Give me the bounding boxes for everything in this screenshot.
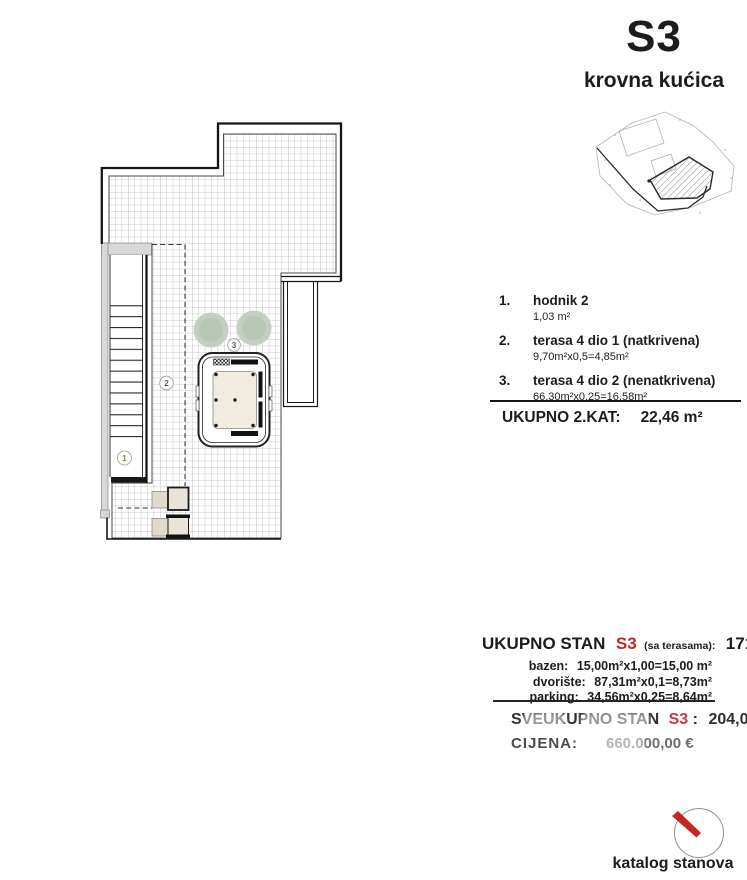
- stair-top-wall: [102, 243, 152, 255]
- right-planter-wall-inner: [288, 282, 314, 403]
- legend-item: 3. terasa 4 dio 2 (nenatkrivena) 66,30m²…: [499, 373, 747, 403]
- legend-item-number: 2.: [499, 333, 533, 363]
- unit-type-subtitle: krovna kućica: [571, 69, 737, 93]
- flat-total-note: (sa terasama):: [644, 640, 715, 652]
- left-outer-wall: [102, 243, 109, 513]
- grand-total-code: S3: [669, 711, 689, 728]
- legend-item-number: 3.: [499, 373, 533, 403]
- legend-item-number: 1.: [499, 293, 533, 323]
- legend-item-area: 1,03 m²: [533, 311, 589, 323]
- extra-area-row: dvorište: 87,31m²x0,1=8,73m²: [529, 675, 712, 691]
- room-label-3: 3: [228, 339, 241, 352]
- hot-tub: [196, 353, 272, 447]
- floor-plan: 1 2 3: [95, 120, 347, 544]
- flat-total-label: UKUPNO STAN: [482, 634, 605, 653]
- price-label: CIJENA:: [511, 735, 578, 752]
- room-legend: 1. hodnik 2 1,03 m² 2. terasa 4 dio 1 (n…: [499, 293, 747, 413]
- right-wall-band: [281, 277, 341, 282]
- legend-item-area: 9,70m²x0,5=4,85m²: [533, 351, 700, 363]
- unit-code-title: S3: [571, 14, 737, 60]
- site-speckles: [604, 119, 731, 213]
- right-planter-wall-outer: [284, 282, 318, 407]
- legend-item: 2. terasa 4 dio 1 (natkrivena) 9,70m²x0,…: [499, 333, 747, 363]
- catalog-page: S3 krovna kućica: [0, 0, 747, 880]
- svg-text:2: 2: [164, 379, 169, 388]
- catalog-caption: katalog stanova: [600, 855, 746, 873]
- floor-total-row: UKUPNO 2.KAT: 22,46 m²: [502, 409, 703, 427]
- flat-total-value: 171,67 m²: [726, 634, 747, 653]
- extra-area-formula: 15,00m²x1,00=15,00 m²: [577, 659, 712, 673]
- svg-text:1: 1: [122, 454, 127, 463]
- legend-item-name: terasa 4 dio 1 (natkrivena): [533, 333, 700, 348]
- tree-icon: [237, 311, 272, 346]
- legend-item-name: hodnik 2: [533, 293, 589, 308]
- tree-icon: [194, 313, 229, 348]
- extra-area-name: dvorište:: [533, 675, 586, 689]
- divider-line: [493, 700, 715, 702]
- divider-line: [490, 400, 741, 402]
- extra-area-row: bazen: 15,00m²x1,00=15,00 m²: [529, 659, 712, 675]
- grand-total-value: 204,04 m²: [708, 711, 747, 728]
- grand-total-label: SVEUKUPNO STAN: [511, 711, 659, 728]
- grand-total-separator: :: [693, 711, 698, 728]
- floor-total-value: 22,46 m²: [641, 409, 703, 427]
- grand-total-row: SVEUKUPNO STAN S3 : 204,04 m²: [511, 711, 747, 729]
- site-location-map: [590, 105, 744, 229]
- neighbor-building-outline: [619, 119, 664, 156]
- extra-area-formula: 87,31m²x0,1=8,73m²: [594, 675, 712, 689]
- extra-area-row: parking: 34,56m²x0,25=8,64m²: [529, 690, 712, 706]
- extra-area-name: bazen:: [529, 659, 569, 673]
- extra-areas-list: bazen: 15,00m²x1,00=15,00 m² dvorište: 8…: [529, 659, 712, 706]
- floor-total-label: UKUPNO 2.KAT:: [502, 409, 621, 427]
- room-label-2: 2: [160, 376, 174, 390]
- left-wall-step: [101, 510, 110, 518]
- stair-treads: [110, 301, 143, 444]
- price-value: 660.000,00 €: [606, 735, 694, 752]
- svg-text:3: 3: [232, 341, 237, 350]
- highlighted-building: [650, 157, 713, 199]
- legend-item: 1. hodnik 2 1,03 m²: [499, 293, 747, 323]
- flat-total-row: UKUPNO STAN S3 (sa terasama): 171,67 m²: [482, 634, 747, 654]
- legend-item-name: terasa 4 dio 2 (nenatkrivena): [533, 373, 715, 388]
- flat-code: S3: [616, 634, 637, 653]
- site-marker-dot: [647, 179, 650, 182]
- room-label-1: 1: [118, 451, 132, 465]
- header: S3 krovna kućica: [571, 14, 737, 93]
- hallway-bottom-wall: [111, 477, 147, 483]
